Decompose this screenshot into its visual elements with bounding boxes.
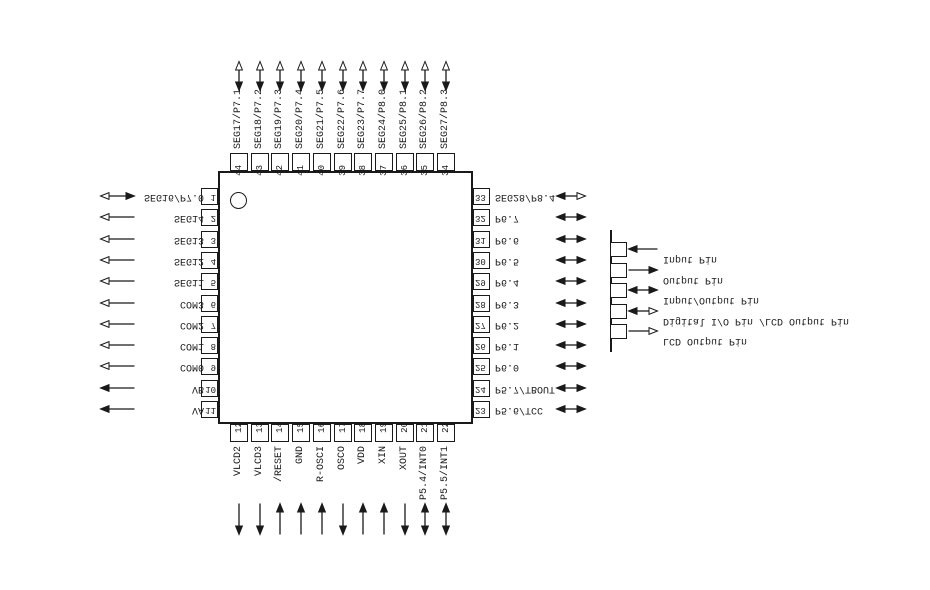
pin-number: 34 bbox=[440, 165, 452, 176]
io-arrow-icon bbox=[628, 284, 658, 296]
legend-label: LCD Output Pin bbox=[663, 334, 747, 346]
lcd-arrow-icon bbox=[100, 339, 135, 351]
io-lcd-arrow-icon bbox=[556, 190, 586, 202]
pin-label: SEG17/P7.1 bbox=[232, 89, 246, 149]
pin-number: 4 bbox=[211, 255, 216, 267]
io-arrow-icon bbox=[556, 254, 586, 266]
pin-number: 17 bbox=[337, 422, 349, 433]
out-arrow-icon bbox=[100, 382, 135, 394]
pin-number: 44 bbox=[233, 165, 245, 176]
io-lcd-arrow-icon bbox=[254, 61, 266, 91]
pin-label: XOUT bbox=[398, 446, 412, 470]
pin-number: 18 bbox=[357, 422, 369, 433]
pin-label: COM0 bbox=[180, 360, 204, 372]
pin-label: SEG20/P7.4 bbox=[294, 89, 308, 149]
legend-label: Input/Output Pin bbox=[663, 293, 759, 305]
pin-number: 38 bbox=[357, 165, 369, 176]
io-arrow-icon bbox=[556, 211, 586, 223]
pin-label: P6.0 bbox=[495, 360, 519, 372]
io-lcd-arrow-icon bbox=[378, 61, 390, 91]
pin-label: P6.4 bbox=[495, 275, 519, 287]
chip-pinout-diagram: 44SEG17/P7.143SEG18/P7.242SEG19/P7.341SE… bbox=[0, 0, 930, 590]
pin-number: 15 bbox=[295, 422, 307, 433]
pin-label: VLCD3 bbox=[253, 446, 267, 476]
legend-box bbox=[610, 263, 627, 278]
pin-label: R-OSCI bbox=[315, 446, 329, 482]
io-arrow-icon bbox=[556, 297, 586, 309]
pin-label: SEG11 bbox=[174, 275, 204, 287]
pin-label: COM1 bbox=[180, 339, 204, 351]
pin-label: P6.3 bbox=[495, 297, 519, 309]
pin-number: 28 bbox=[475, 298, 486, 310]
lcd-arrow-icon bbox=[100, 297, 135, 309]
io-lcd-arrow-icon bbox=[399, 61, 411, 91]
io-lcd-arrow-icon bbox=[233, 61, 245, 91]
io-lcd-arrow-icon bbox=[100, 190, 135, 202]
lcd-arrow-icon bbox=[100, 254, 135, 266]
io-arrow-icon bbox=[556, 339, 586, 351]
pin-label: COM2 bbox=[180, 318, 204, 330]
pin-number: 3 bbox=[211, 234, 216, 246]
pin-label: SEG22/P7.6 bbox=[336, 89, 350, 149]
pin-label: SEG14 bbox=[174, 211, 204, 223]
pin-number: 36 bbox=[399, 165, 411, 176]
pin-number: 32 bbox=[475, 212, 486, 224]
io-lcd-arrow-icon bbox=[419, 61, 431, 91]
pin-number: 35 bbox=[419, 165, 431, 176]
pin-label: SEG25/P8.1 bbox=[398, 89, 412, 149]
in-arrow-icon bbox=[316, 503, 328, 535]
pin-number: 6 bbox=[211, 298, 216, 310]
legend-box bbox=[610, 304, 627, 319]
io-lcd-arrow-icon bbox=[295, 61, 307, 91]
pin-label: OSCO bbox=[336, 446, 350, 470]
pin-label: SEG24/P8.0 bbox=[377, 89, 391, 149]
legend-box bbox=[610, 283, 627, 298]
pin-label: SEG12 bbox=[174, 254, 204, 266]
lcd-arrow-icon bbox=[100, 211, 135, 223]
pin-label: P6.7 bbox=[495, 211, 519, 223]
io-arrow-icon bbox=[556, 233, 586, 245]
io-arrow-icon bbox=[419, 503, 431, 535]
pin-number: 2 bbox=[211, 212, 216, 224]
in-arrow-icon bbox=[295, 503, 307, 535]
in-arrow-icon bbox=[628, 243, 658, 255]
pin-label: SEG18/P7.2 bbox=[253, 89, 267, 149]
pin-label: SEG13 bbox=[174, 233, 204, 245]
pin-number: 8 bbox=[211, 340, 216, 352]
pin-number: 40 bbox=[316, 165, 328, 176]
pin-number: 16 bbox=[316, 422, 328, 433]
io-arrow-icon bbox=[556, 403, 586, 415]
pin-number: 5 bbox=[211, 276, 216, 288]
pin-number: 19 bbox=[378, 422, 390, 433]
pin-label: P6.6 bbox=[495, 233, 519, 245]
pin-number: 14 bbox=[274, 422, 286, 433]
out-arrow-icon bbox=[628, 264, 658, 276]
pin-label: P5.5/INT1 bbox=[439, 446, 453, 500]
pin-label: XIN bbox=[377, 446, 391, 464]
io-lcd-arrow-icon bbox=[316, 61, 328, 91]
pin-label: P5.6/TCC bbox=[495, 403, 543, 415]
pin-number: 37 bbox=[378, 165, 390, 176]
pin-label: GND bbox=[294, 446, 308, 464]
pin-label: /RESET bbox=[273, 446, 287, 482]
pin-number: 42 bbox=[274, 165, 286, 176]
pin-number: 31 bbox=[475, 234, 486, 246]
io-arrow-icon bbox=[556, 360, 586, 372]
lcd-arrow-icon bbox=[628, 325, 658, 337]
pin-label: P6.2 bbox=[495, 318, 519, 330]
pin-number: 24 bbox=[475, 383, 486, 395]
pin-number: 23 bbox=[475, 404, 486, 416]
out-arrow-icon bbox=[337, 503, 349, 535]
io-arrow-icon bbox=[556, 275, 586, 287]
legend-label: Input Pin bbox=[663, 252, 717, 264]
legend-box bbox=[610, 242, 627, 257]
pin-number: 1 bbox=[211, 191, 216, 203]
legend-label: Digital I/O Pin /LCD Output Pin bbox=[663, 314, 849, 326]
pin-number: 25 bbox=[475, 361, 486, 373]
pin1-indicator-circle bbox=[230, 192, 247, 209]
pin-number: 10 bbox=[205, 383, 216, 395]
pin-number: 26 bbox=[475, 340, 486, 352]
out-arrow-icon bbox=[233, 503, 245, 535]
pin-label: SEG16/P7.0 bbox=[144, 190, 204, 202]
pin-label: P6.5 bbox=[495, 254, 519, 266]
pin-number: 39 bbox=[337, 165, 349, 176]
pin-label: P6.1 bbox=[495, 339, 519, 351]
pin-label: SEG21/P7.5 bbox=[315, 89, 329, 149]
in-arrow-icon bbox=[357, 503, 369, 535]
pin-number: 43 bbox=[254, 165, 266, 176]
pin-number: 11 bbox=[205, 404, 216, 416]
pin-number: 13 bbox=[254, 422, 266, 433]
pin-number: 21 bbox=[419, 422, 431, 433]
out-arrow-icon bbox=[399, 503, 411, 535]
out-arrow-icon bbox=[100, 403, 135, 415]
io-lcd-arrow-icon bbox=[337, 61, 349, 91]
pin-number: 30 bbox=[475, 255, 486, 267]
pin-label: SEG27/P8.3 bbox=[439, 89, 453, 149]
pin-number: 7 bbox=[211, 319, 216, 331]
pin-label: SEG28/P8.4 bbox=[495, 190, 555, 202]
lcd-arrow-icon bbox=[100, 360, 135, 372]
pin-number: 33 bbox=[475, 191, 486, 203]
pin-number: 27 bbox=[475, 319, 486, 331]
lcd-arrow-icon bbox=[100, 318, 135, 330]
pin-label: P5.7/TBOUT bbox=[495, 382, 555, 394]
in-arrow-icon bbox=[378, 503, 390, 535]
chip-body bbox=[218, 171, 473, 424]
out-arrow-icon bbox=[254, 503, 266, 535]
pin-label: P5.4/INT0 bbox=[418, 446, 432, 500]
io-lcd-arrow-icon bbox=[440, 61, 452, 91]
lcd-arrow-icon bbox=[100, 275, 135, 287]
lcd-arrow-icon bbox=[100, 233, 135, 245]
pin-label: VLCD2 bbox=[232, 446, 246, 476]
in-arrow-icon bbox=[274, 503, 286, 535]
io-lcd-arrow-icon bbox=[357, 61, 369, 91]
io-arrow-icon bbox=[556, 318, 586, 330]
pin-label: COM3 bbox=[180, 297, 204, 309]
pin-number: 41 bbox=[295, 165, 307, 176]
io-arrow-icon bbox=[440, 503, 452, 535]
legend-box bbox=[610, 324, 627, 339]
pin-label: VDD bbox=[356, 446, 370, 464]
io-lcd-arrow-icon bbox=[274, 61, 286, 91]
pin-number: 9 bbox=[211, 361, 216, 373]
io-lcd-arrow-icon bbox=[628, 305, 658, 317]
pin-number: 22 bbox=[440, 422, 452, 433]
pin-number: 29 bbox=[475, 276, 486, 288]
pin-number: 12 bbox=[233, 422, 245, 433]
pin-label: SEG26/P8.2 bbox=[418, 89, 432, 149]
pin-label: VA bbox=[192, 403, 204, 415]
pin-label: SEG23/P7.7 bbox=[356, 89, 370, 149]
pin-number: 20 bbox=[399, 422, 411, 433]
io-arrow-icon bbox=[556, 382, 586, 394]
legend-label: Output Pin bbox=[663, 273, 723, 285]
pin-label: SEG19/P7.3 bbox=[273, 89, 287, 149]
pin-label: VB bbox=[192, 382, 204, 394]
